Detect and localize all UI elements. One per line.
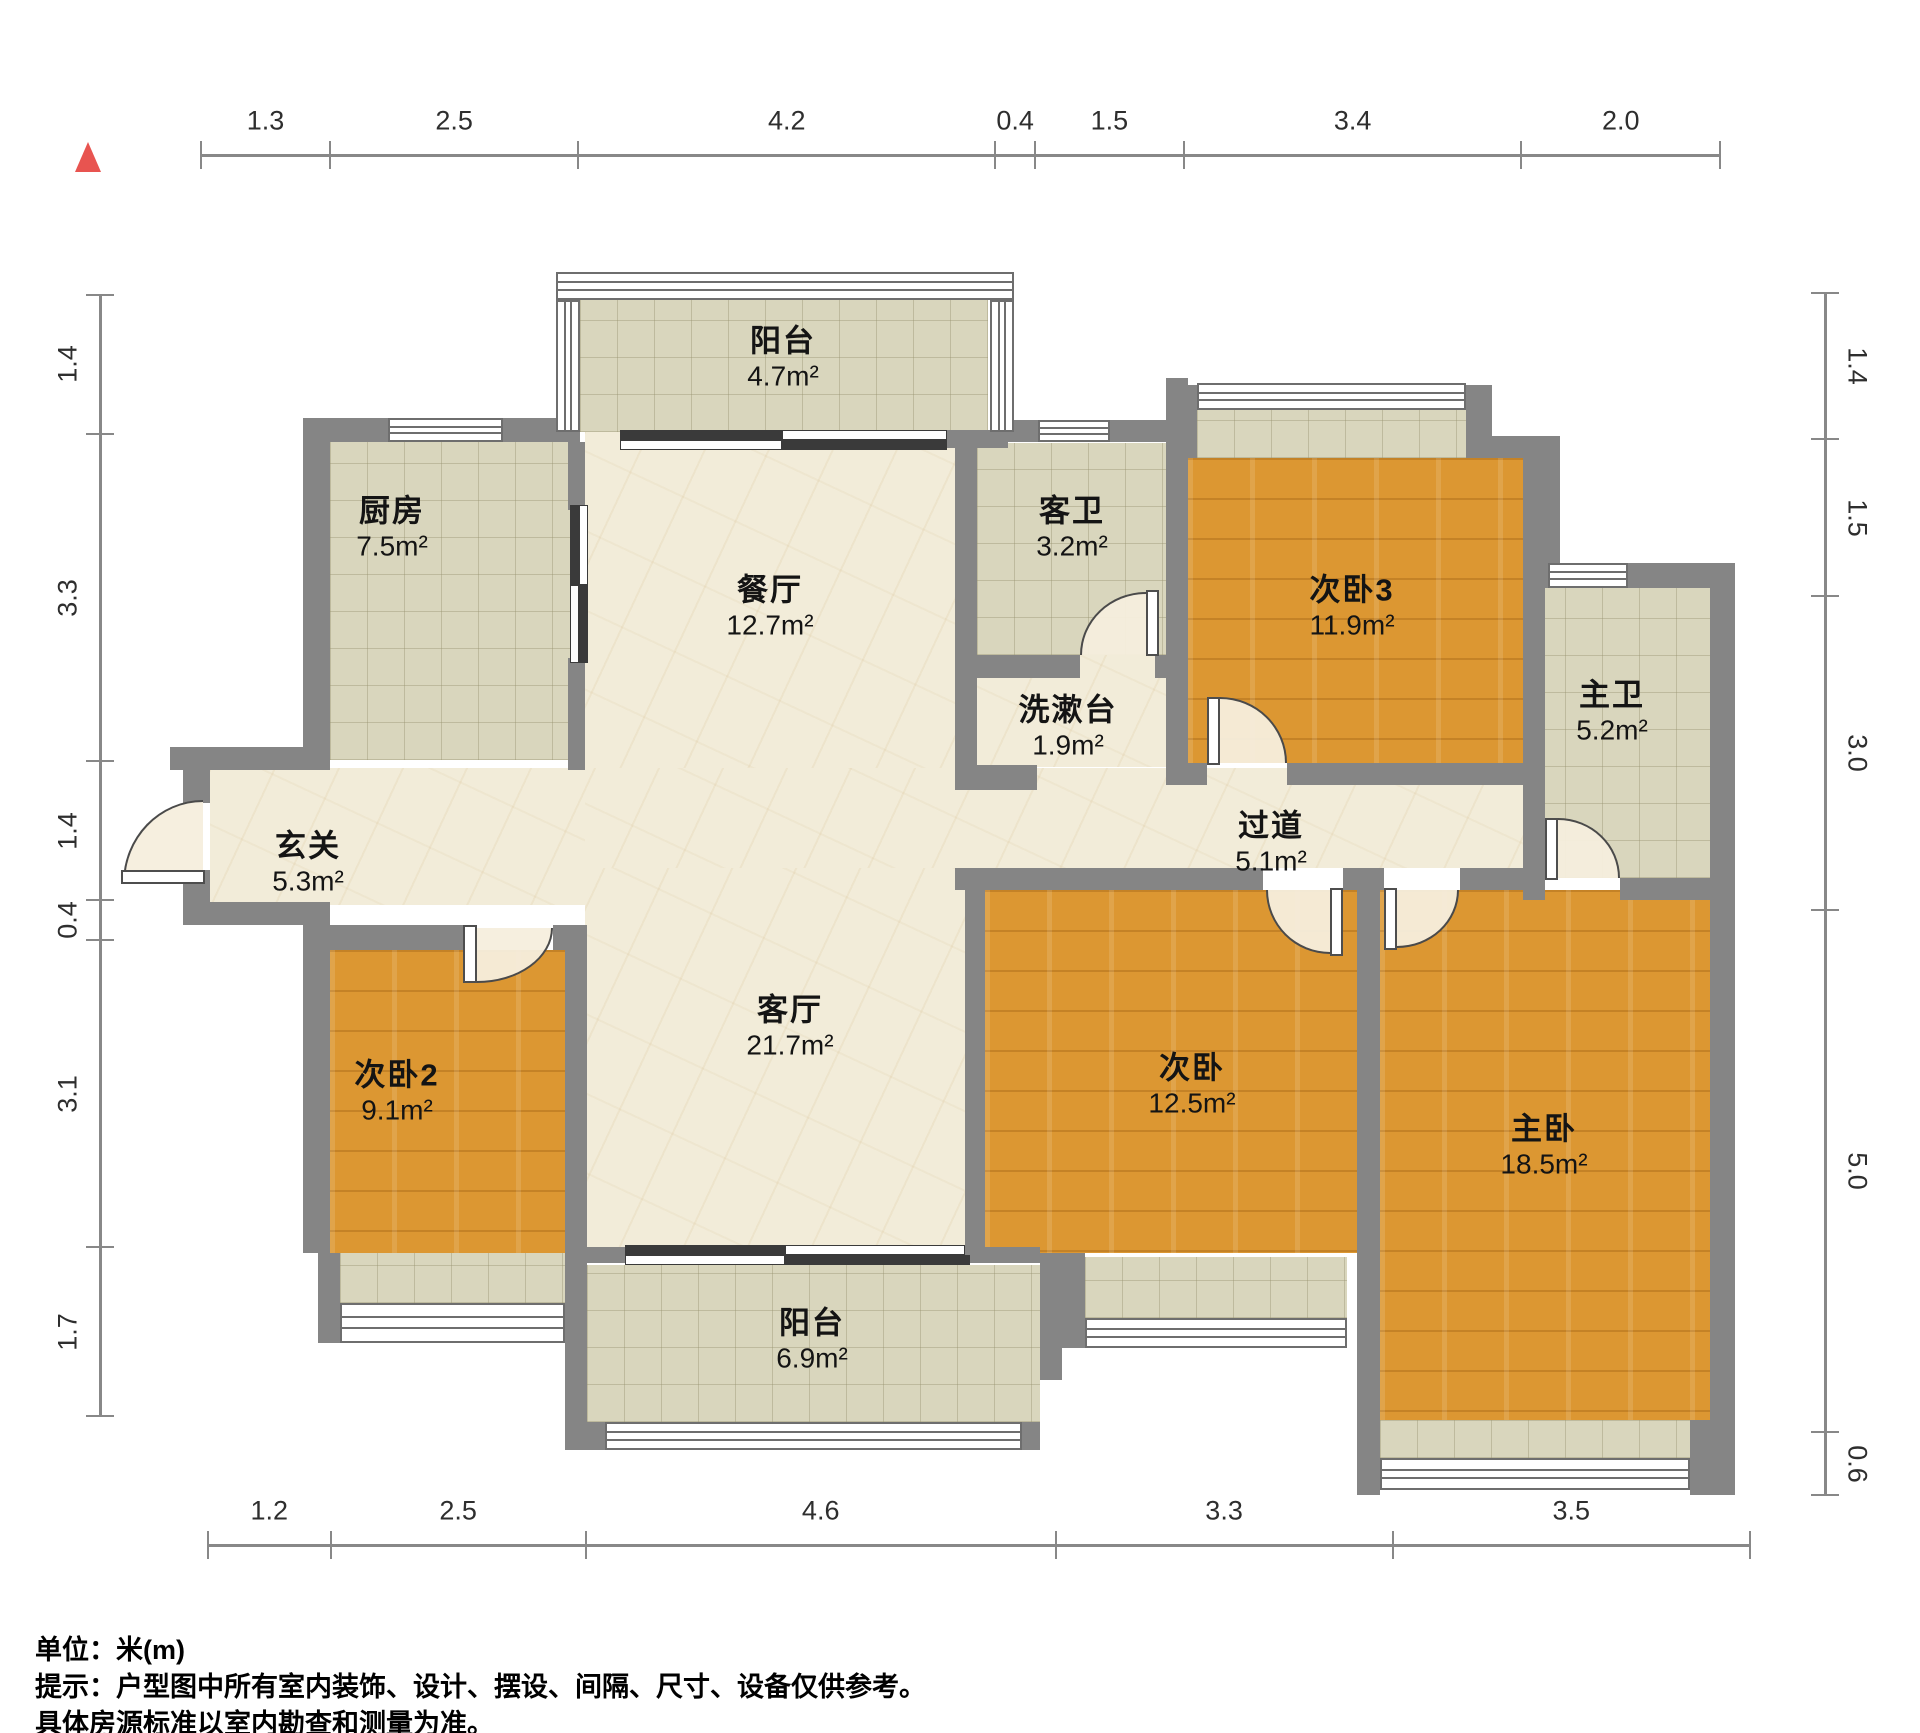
dimension-tick [1183, 141, 1185, 169]
window [605, 1422, 1022, 1450]
wall [1155, 655, 1166, 678]
window [1548, 563, 1628, 588]
door-leaf [121, 870, 205, 884]
window [340, 1303, 565, 1343]
door-leaf [1545, 818, 1558, 880]
room-area: 11.9m² [1309, 609, 1394, 643]
room-label-kitchen: 厨房7.5m² [356, 493, 428, 564]
dimension-value-top: 3.4 [1334, 106, 1372, 137]
window [1380, 1458, 1690, 1490]
room-label-entry: 玄关5.3m² [272, 828, 344, 899]
room-label-bedroom: 次卧12.5m² [1148, 1050, 1235, 1121]
room-name: 客卫 [1036, 493, 1108, 530]
dimension-tick [86, 939, 114, 941]
room-name: 餐厅 [726, 572, 813, 609]
dimension-tick [86, 899, 114, 901]
dimension-tick [1055, 1531, 1057, 1559]
room-area: 12.5m² [1148, 1087, 1235, 1121]
window [1197, 383, 1466, 410]
window [556, 300, 580, 432]
sliding-door [785, 1255, 970, 1265]
dimension-value-left: 3.1 [53, 1075, 84, 1113]
dimension-value-left: 1.7 [53, 1313, 84, 1351]
dimension-value-left: 3.3 [53, 579, 84, 617]
dimension-tick [1811, 292, 1839, 294]
dimension-value-right: 0.6 [1842, 1445, 1873, 1483]
wall [318, 1253, 340, 1343]
dimension-tick [577, 141, 579, 169]
room-area: 6.9m² [776, 1342, 848, 1376]
room-label-balcony-bottom: 阳台6.9m² [776, 1305, 848, 1376]
window-sill [1380, 1420, 1690, 1458]
room-label-master-bedroom: 主卧18.5m² [1500, 1111, 1587, 1182]
sliding-door [579, 585, 588, 663]
disclaimer-line-2: 具体房源标准以室内勘查和测量为准。 [35, 1706, 926, 1733]
room-area: 4.7m² [747, 360, 819, 394]
dimension-value-bottom: 4.6 [802, 1496, 840, 1527]
wall [1040, 1253, 1062, 1380]
dimension-value-top: 2.5 [435, 106, 473, 137]
dimension-value-left: 1.4 [53, 346, 84, 384]
dimension-tick [330, 1531, 332, 1559]
sliding-door [625, 1245, 785, 1255]
sliding-door [785, 1245, 965, 1255]
window-sill [1085, 1257, 1347, 1318]
sliding-door [579, 505, 588, 585]
room-area: 5.1m² [1235, 845, 1307, 879]
window-sill [340, 1253, 565, 1303]
room-name: 次卧 [1148, 1050, 1235, 1087]
dimension-line-right [1824, 293, 1827, 1495]
room-area: 12.7m² [726, 609, 813, 643]
wall [1357, 890, 1380, 1495]
floor-plan: 阳台4.7m²厨房7.5m²餐厅12.7m²客卫3.2m²洗漱台1.9m²次卧3… [0, 0, 1920, 1733]
wall [568, 658, 585, 770]
dimension-tick [1811, 595, 1839, 597]
dimension-value-right: 5.0 [1842, 1152, 1873, 1190]
door-leaf [463, 925, 477, 983]
room-name: 过道 [1235, 808, 1307, 845]
wall [1171, 458, 1188, 763]
dimension-tick [1034, 141, 1036, 169]
dimension-tick [1719, 141, 1721, 169]
room-floor-kitchen [330, 442, 570, 760]
dimension-tick [86, 1246, 114, 1248]
door-leaf [1207, 697, 1220, 765]
wall [1343, 868, 1384, 890]
room-area: 7.5m² [356, 530, 428, 564]
dimension-value-right: 3.0 [1842, 734, 1873, 772]
wall [565, 950, 587, 1253]
dimension-value-left: 0.4 [53, 901, 84, 939]
wall [330, 925, 463, 950]
door-leaf [1330, 888, 1343, 956]
window [556, 272, 1014, 300]
sliding-door [620, 440, 782, 450]
dimension-tick [1811, 1431, 1839, 1433]
wall [1710, 563, 1735, 1423]
wall [303, 925, 330, 1253]
wall [303, 418, 330, 747]
dimension-tick [86, 433, 114, 435]
sliding-door [620, 430, 782, 440]
wall [955, 655, 1080, 678]
room-name: 次卧3 [1309, 572, 1394, 609]
room-label-balcony-top: 阳台4.7m² [747, 323, 819, 394]
dimension-value-left: 1.4 [53, 812, 84, 850]
footer-notes: 单位：米(m) 提示：户型图中所有室内装饰、设计、摆设、间隔、尺寸、设备仅供参考… [35, 1632, 926, 1733]
room-label-master-bath: 主卫5.2m² [1576, 677, 1648, 748]
wall [183, 770, 210, 803]
room-area: 21.7m² [746, 1029, 833, 1063]
wall [965, 868, 985, 1253]
sliding-door [570, 585, 579, 663]
window [388, 418, 503, 442]
room-floor-entry [210, 768, 585, 905]
dimension-tick [1811, 909, 1839, 911]
room-name: 次卧2 [354, 1057, 439, 1094]
window [990, 300, 1014, 432]
wall [553, 925, 587, 950]
dimension-value-top: 1.3 [247, 106, 285, 137]
dimension-tick [329, 141, 331, 169]
dimension-tick [200, 141, 202, 169]
wall [965, 1247, 1040, 1263]
wall [568, 442, 585, 510]
wall [955, 430, 977, 770]
room-name: 阳台 [747, 323, 819, 360]
dimension-value-bottom: 1.2 [250, 1496, 288, 1527]
room-label-guest-bath: 客卫3.2m² [1036, 493, 1108, 564]
wall [170, 747, 330, 770]
sliding-door [625, 1255, 785, 1265]
dimension-value-bottom: 3.5 [1553, 1496, 1591, 1527]
sliding-door [782, 440, 947, 450]
dimension-tick [1749, 1531, 1751, 1559]
room-name: 阳台 [776, 1305, 848, 1342]
dimension-tick [1520, 141, 1522, 169]
room-area: 5.2m² [1576, 714, 1648, 748]
dimension-value-bottom: 3.3 [1205, 1496, 1243, 1527]
dimension-tick [994, 141, 996, 169]
dimension-value-right: 1.5 [1842, 499, 1873, 537]
wall [1460, 868, 1545, 890]
wall [1062, 1253, 1085, 1348]
room-name: 客厅 [746, 992, 833, 1029]
dimension-tick [86, 1415, 114, 1417]
room-label-hallway: 过道5.1m² [1235, 808, 1307, 879]
sliding-door [570, 505, 579, 585]
unit-note: 单位：米(m) [35, 1632, 926, 1669]
dimension-tick [86, 760, 114, 762]
wall [1022, 1422, 1040, 1450]
room-area: 3.2m² [1036, 530, 1108, 564]
room-label-dining: 餐厅12.7m² [726, 572, 813, 643]
room-name: 厨房 [356, 493, 428, 530]
dimension-tick [207, 1531, 209, 1559]
room-area: 5.3m² [272, 865, 344, 899]
dimension-value-bottom: 2.5 [439, 1496, 477, 1527]
room-name: 洗漱台 [1019, 692, 1118, 729]
dimension-line-bottom [208, 1544, 1750, 1547]
window-sill [1197, 410, 1466, 458]
dimension-value-right: 1.4 [1842, 347, 1873, 385]
dimension-tick [1811, 1494, 1839, 1496]
dimension-tick [1811, 438, 1839, 440]
wall [955, 868, 1263, 890]
room-name: 玄关 [272, 828, 344, 865]
sliding-door [782, 430, 947, 440]
wall [955, 765, 1037, 790]
room-area: 1.9m² [1019, 729, 1118, 763]
wall [1690, 1420, 1735, 1495]
wall [183, 902, 330, 925]
room-name: 主卫 [1576, 677, 1648, 714]
dimension-value-top: 1.5 [1091, 106, 1129, 137]
window [1085, 1318, 1347, 1348]
wall [1287, 763, 1545, 785]
disclaimer-line-1: 提示：户型图中所有室内装饰、设计、摆设、间隔、尺寸、设备仅供参考。 [35, 1669, 926, 1706]
dimension-value-top: 0.4 [996, 106, 1034, 137]
window [1038, 420, 1110, 442]
dimension-tick [1392, 1531, 1394, 1559]
dimension-line-top [201, 154, 1720, 157]
dimension-tick [86, 294, 114, 296]
wall [587, 1247, 625, 1263]
wall [1171, 385, 1197, 458]
room-label-washstand: 洗漱台1.9m² [1019, 692, 1118, 763]
room-area: 9.1m² [354, 1094, 439, 1128]
dimension-tick [585, 1531, 587, 1559]
room-area: 18.5m² [1500, 1148, 1587, 1182]
wall [587, 1422, 605, 1450]
room-label-bedroom3: 次卧311.9m² [1309, 572, 1394, 643]
door-leaf [1384, 888, 1397, 950]
dimension-value-top: 2.0 [1602, 106, 1640, 137]
wall [565, 1253, 587, 1450]
dimension-value-top: 4.2 [768, 106, 806, 137]
room-name: 主卧 [1500, 1111, 1587, 1148]
wall [1620, 878, 1710, 900]
wall [1171, 763, 1207, 785]
room-label-living: 客厅21.7m² [746, 992, 833, 1063]
door-leaf [1146, 590, 1159, 656]
room-label-bedroom2: 次卧29.1m² [354, 1057, 439, 1128]
floor-plan-page: 阳台4.7m²厨房7.5m²餐厅12.7m²客卫3.2m²洗漱台1.9m²次卧3… [0, 0, 1920, 1733]
